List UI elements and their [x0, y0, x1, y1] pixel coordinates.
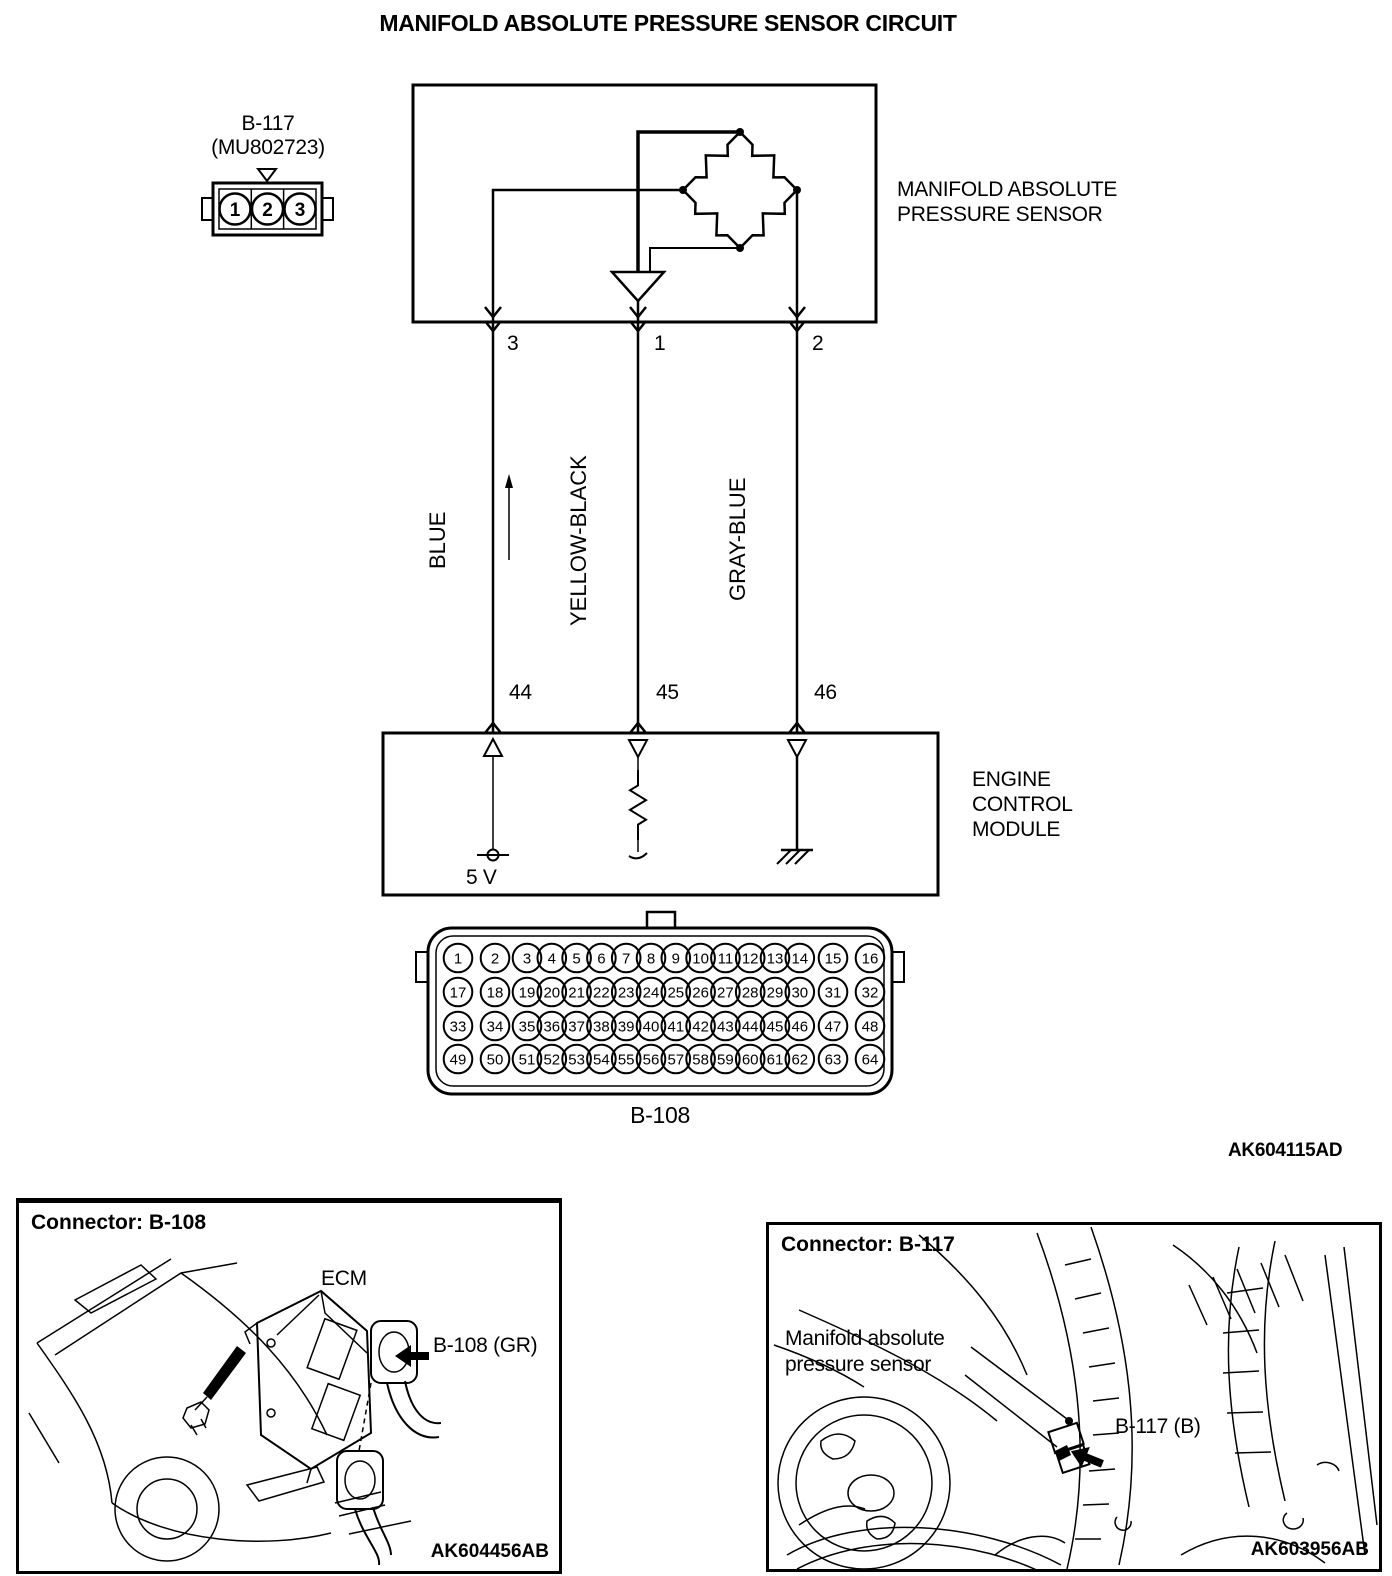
b108-pin-label-39: 39: [618, 1019, 635, 1036]
sensor-label-line1: MANIFOLD ABSOLUTE: [897, 178, 1117, 202]
b117-pin-label-2: 2: [262, 200, 273, 221]
b108-pin-label-11: 11: [718, 951, 734, 968]
b117-part-number: (MU802723): [211, 136, 325, 160]
sensor-pin-3: 3: [507, 332, 518, 356]
sensor-callout-line2: pressure sensor: [785, 1353, 931, 1377]
b108-pin-label-53: 53: [568, 1052, 585, 1069]
b108-pin-label-51: 51: [519, 1052, 536, 1069]
ecm-label-line3: MODULE: [972, 818, 1060, 842]
panel-b117-heading: Connector: B-117: [781, 1233, 955, 1257]
b108-pin-label-2: 2: [491, 951, 499, 968]
locator-arrow-icon: [195, 1346, 246, 1410]
b108-pin-label-16: 16: [862, 951, 879, 968]
b108-pin-label-24: 24: [643, 985, 660, 1002]
b108-pin-label-40: 40: [643, 1019, 660, 1036]
b108-pin-label-22: 22: [593, 985, 610, 1002]
b108-pin-label-31: 31: [825, 985, 842, 1002]
b108-pin-label-1: 1: [454, 951, 462, 968]
b108-pin-label-30: 30: [791, 985, 808, 1002]
wire-exit-arrows: [485, 307, 805, 331]
b108-pin-label-59: 59: [717, 1052, 734, 1069]
b108-pin-label-4: 4: [548, 951, 556, 968]
sensor-internal-wiring: [612, 132, 740, 301]
b108-pin-label-63: 63: [825, 1052, 842, 1069]
b108-pin-label-33: 33: [450, 1019, 467, 1036]
b108-pin-label-15: 15: [825, 951, 842, 968]
b108-pin-label-5: 5: [572, 951, 580, 968]
buffer-triangle-icon: [612, 272, 664, 301]
b108-pin-label-9: 9: [672, 951, 680, 968]
b108-pin-label-60: 60: [742, 1052, 759, 1069]
b117-pin-label-3: 3: [295, 200, 306, 221]
b108-pin-label-61: 61: [767, 1052, 784, 1069]
b108-pin-label-27: 27: [717, 985, 734, 1002]
b108-pin-label-23: 23: [618, 985, 635, 1002]
b108-pin-label-8: 8: [647, 951, 655, 968]
b108-pin-label-12: 12: [742, 951, 759, 968]
b108-pin-label-37: 37: [568, 1019, 585, 1036]
blue-wire-direction-arrow-icon: [505, 474, 513, 560]
b108-pin-label-56: 56: [643, 1052, 660, 1069]
b108-pin-label-64: 64: [862, 1052, 879, 1069]
service-manual-page: 123: [0, 0, 1392, 1576]
ecm-leader-line: [277, 1295, 319, 1335]
ecm-callout-label: ECM: [321, 1267, 367, 1291]
b108-gr-callout-label: B-108 (GR): [433, 1334, 537, 1358]
ecm-pin-46: 46: [814, 681, 837, 705]
wheatstone-bridge: [679, 128, 801, 252]
supply-5v-symbol: [477, 739, 509, 861]
ecm-pin-45: 45: [656, 681, 679, 705]
b108-pin-label-62: 62: [791, 1052, 808, 1069]
b108-pin-label-38: 38: [593, 1019, 610, 1036]
b108-pin-label-19: 19: [519, 985, 536, 1002]
b108-pin-label-25: 25: [667, 985, 684, 1002]
b108-pin-label-49: 49: [450, 1052, 467, 1069]
b108-pin-label-46: 46: [791, 1019, 808, 1036]
b108-pin-label-54: 54: [593, 1052, 610, 1069]
b108-pin-label-47: 47: [825, 1019, 842, 1036]
b108-pin-label-41: 41: [667, 1019, 684, 1036]
panel-connector-b117: Connector: B-117 Manifold absolute press…: [766, 1222, 1382, 1572]
b108-pin-label-29: 29: [767, 985, 784, 1002]
b117-location-illustration: [769, 1225, 1379, 1569]
b108-pin-label-52: 52: [543, 1052, 560, 1069]
page-title: MANIFOLD ABSOLUTE PRESSURE SENSOR CIRCUI…: [379, 10, 956, 37]
b108-pin-label-50: 50: [487, 1052, 504, 1069]
b108-pin-label-6: 6: [597, 951, 605, 968]
wiring-diagram-svg: 123: [0, 0, 1392, 1180]
b108-pin-label-14: 14: [791, 951, 808, 968]
b108-pin-label-55: 55: [618, 1052, 635, 1069]
supply-5v-label: 5 V: [466, 866, 497, 890]
panel-connector-b108: Connector: B-108 ECM B-108 (GR) AK604456…: [16, 1198, 562, 1574]
ecm-label-line2: CONTROL: [972, 793, 1073, 817]
b117-pin-grid: 123: [220, 194, 316, 225]
b108-pin-label-57: 57: [667, 1052, 684, 1069]
sensor-pin-2: 2: [812, 332, 823, 356]
b108-pin-label-35: 35: [519, 1019, 536, 1036]
b108-pin-label-36: 36: [543, 1019, 560, 1036]
car-illustration: [29, 1259, 411, 1561]
b108-pin-label-58: 58: [692, 1052, 709, 1069]
b108-pin-label-17: 17: [450, 985, 467, 1002]
b108-pin-label-42: 42: [692, 1019, 709, 1036]
panel-b117-code: AK603956AB: [1251, 1539, 1369, 1561]
b108-pin-label-10: 10: [692, 951, 709, 968]
b117-pin-label-1: 1: [230, 200, 241, 221]
b108-connector-name: B-108: [630, 1102, 690, 1129]
wire-color-gray-blue: GRAY-BLUE: [725, 478, 751, 602]
ecm-label-line1: ENGINE: [972, 768, 1051, 792]
b108-pin-label-3: 3: [523, 951, 531, 968]
wire-color-blue: BLUE: [425, 512, 451, 569]
b108-location-illustration: [19, 1203, 559, 1571]
b108-pin-label-13: 13: [767, 951, 784, 968]
b108-pin-label-26: 26: [692, 985, 709, 1002]
engine-bay-illustration: [774, 1227, 1377, 1569]
b108-connector-drawing: 1234567891011121314151617181920212223242…: [416, 912, 904, 1094]
b108-pin-label-18: 18: [487, 985, 504, 1002]
diagram-code: AK604115AD: [1228, 1140, 1342, 1162]
panel-b108-code: AK604456AB: [431, 1541, 549, 1563]
b117-connector-name: B-117: [242, 112, 295, 136]
ecm-resistor-symbol: [629, 740, 647, 858]
sensor-label-line2: PRESSURE SENSOR: [897, 203, 1103, 227]
ecm-module-illustration: [245, 1291, 371, 1483]
b108-pin-label-43: 43: [717, 1019, 734, 1036]
ground-symbol: [777, 740, 813, 864]
b108-pin-label-45: 45: [767, 1019, 784, 1036]
b108-pin-label-7: 7: [622, 951, 630, 968]
b108-pin-label-44: 44: [742, 1019, 759, 1036]
b108-pin-label-28: 28: [742, 985, 759, 1002]
b108-gr-arrow-icon: [395, 1345, 429, 1367]
b117-b-callout-label: B-117 (B): [1115, 1415, 1201, 1439]
b108-pin-label-34: 34: [487, 1019, 504, 1036]
b117-connector-drawing: 123: [202, 169, 333, 235]
b108-pin-label-20: 20: [543, 985, 560, 1002]
b108-pin-label-21: 21: [568, 985, 585, 1002]
wire-color-yellow-black: YELLOW-BLACK: [566, 455, 592, 626]
b108-pin-label-32: 32: [862, 985, 879, 1002]
sensor-pin-1: 1: [654, 332, 665, 356]
b108-pin-label-48: 48: [862, 1019, 879, 1036]
b117-index-marker-icon: [258, 169, 276, 181]
sensor-callout-line1: Manifold absolute: [785, 1327, 945, 1351]
ecm-pin-44: 44: [509, 681, 532, 705]
panel-b108-heading: Connector: B-108: [31, 1211, 206, 1235]
